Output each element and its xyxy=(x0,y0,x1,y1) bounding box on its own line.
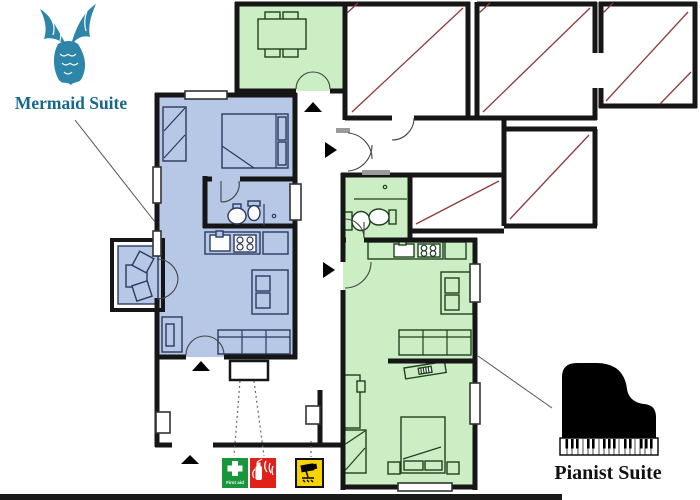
toilet xyxy=(369,209,396,225)
window xyxy=(398,483,452,491)
window xyxy=(153,231,161,256)
tv-cabinet xyxy=(162,317,182,352)
window xyxy=(470,383,480,424)
direction-triangle-right xyxy=(323,262,335,278)
first-aid-sign: First aid xyxy=(222,458,248,488)
hatched-room-d xyxy=(504,118,597,226)
safety-cabinet xyxy=(230,361,268,380)
label-pointer-line xyxy=(478,356,552,408)
toilet xyxy=(248,201,260,221)
wall-stub xyxy=(336,128,350,133)
window xyxy=(470,264,480,302)
mermaid-suite-label-group: Mermaid Suite xyxy=(15,4,155,222)
image-bottom-border xyxy=(0,494,562,500)
kitchen xyxy=(205,231,288,254)
wardrobe xyxy=(344,430,366,473)
pianist-suite-label-group: Pianist Suite xyxy=(478,356,662,484)
armchair xyxy=(441,272,473,314)
safety-signs: First aid xyxy=(222,458,323,488)
stove xyxy=(418,244,440,257)
nightstand xyxy=(388,462,400,474)
window xyxy=(290,184,301,220)
pianist-suite-title: Pianist Suite xyxy=(554,462,661,484)
grand-piano-icon xyxy=(560,363,658,455)
floor-plan-page: First aid xyxy=(0,0,700,500)
fire-extinguisher-sign xyxy=(250,458,276,488)
floor-plan: First aid xyxy=(0,0,700,500)
direction-triangle-right xyxy=(325,142,337,158)
window xyxy=(185,91,227,99)
nightstand xyxy=(447,462,459,474)
direction-triangle-up xyxy=(181,455,199,464)
window xyxy=(156,412,170,433)
sofa xyxy=(399,330,471,355)
patio-table xyxy=(258,19,306,49)
hatched-room-a xyxy=(343,2,597,120)
direction-triangle-up xyxy=(304,102,322,112)
armchair xyxy=(252,270,288,314)
pianist-bathroom-floor xyxy=(343,175,410,240)
stove xyxy=(234,235,256,252)
sink xyxy=(344,212,370,231)
wardrobe xyxy=(163,107,186,161)
window xyxy=(153,167,161,203)
fridge xyxy=(263,232,288,254)
mermaid-suite-title: Mermaid Suite xyxy=(15,93,128,113)
fridge xyxy=(445,242,466,259)
vestibule-door-arcs xyxy=(348,118,414,171)
cctv-sign xyxy=(296,459,323,487)
window xyxy=(306,406,320,424)
kitchen xyxy=(368,240,466,259)
direction-triangle-up xyxy=(192,361,210,371)
hatched-room-b xyxy=(477,2,597,120)
mermaid-tail-icon xyxy=(40,4,96,85)
label-pointer-line xyxy=(75,120,155,222)
wall-stub xyxy=(362,170,390,175)
double-bed xyxy=(222,114,288,168)
sofa xyxy=(218,330,290,354)
hatched-room-c xyxy=(599,2,697,108)
first-aid-label: First aid xyxy=(226,480,244,485)
